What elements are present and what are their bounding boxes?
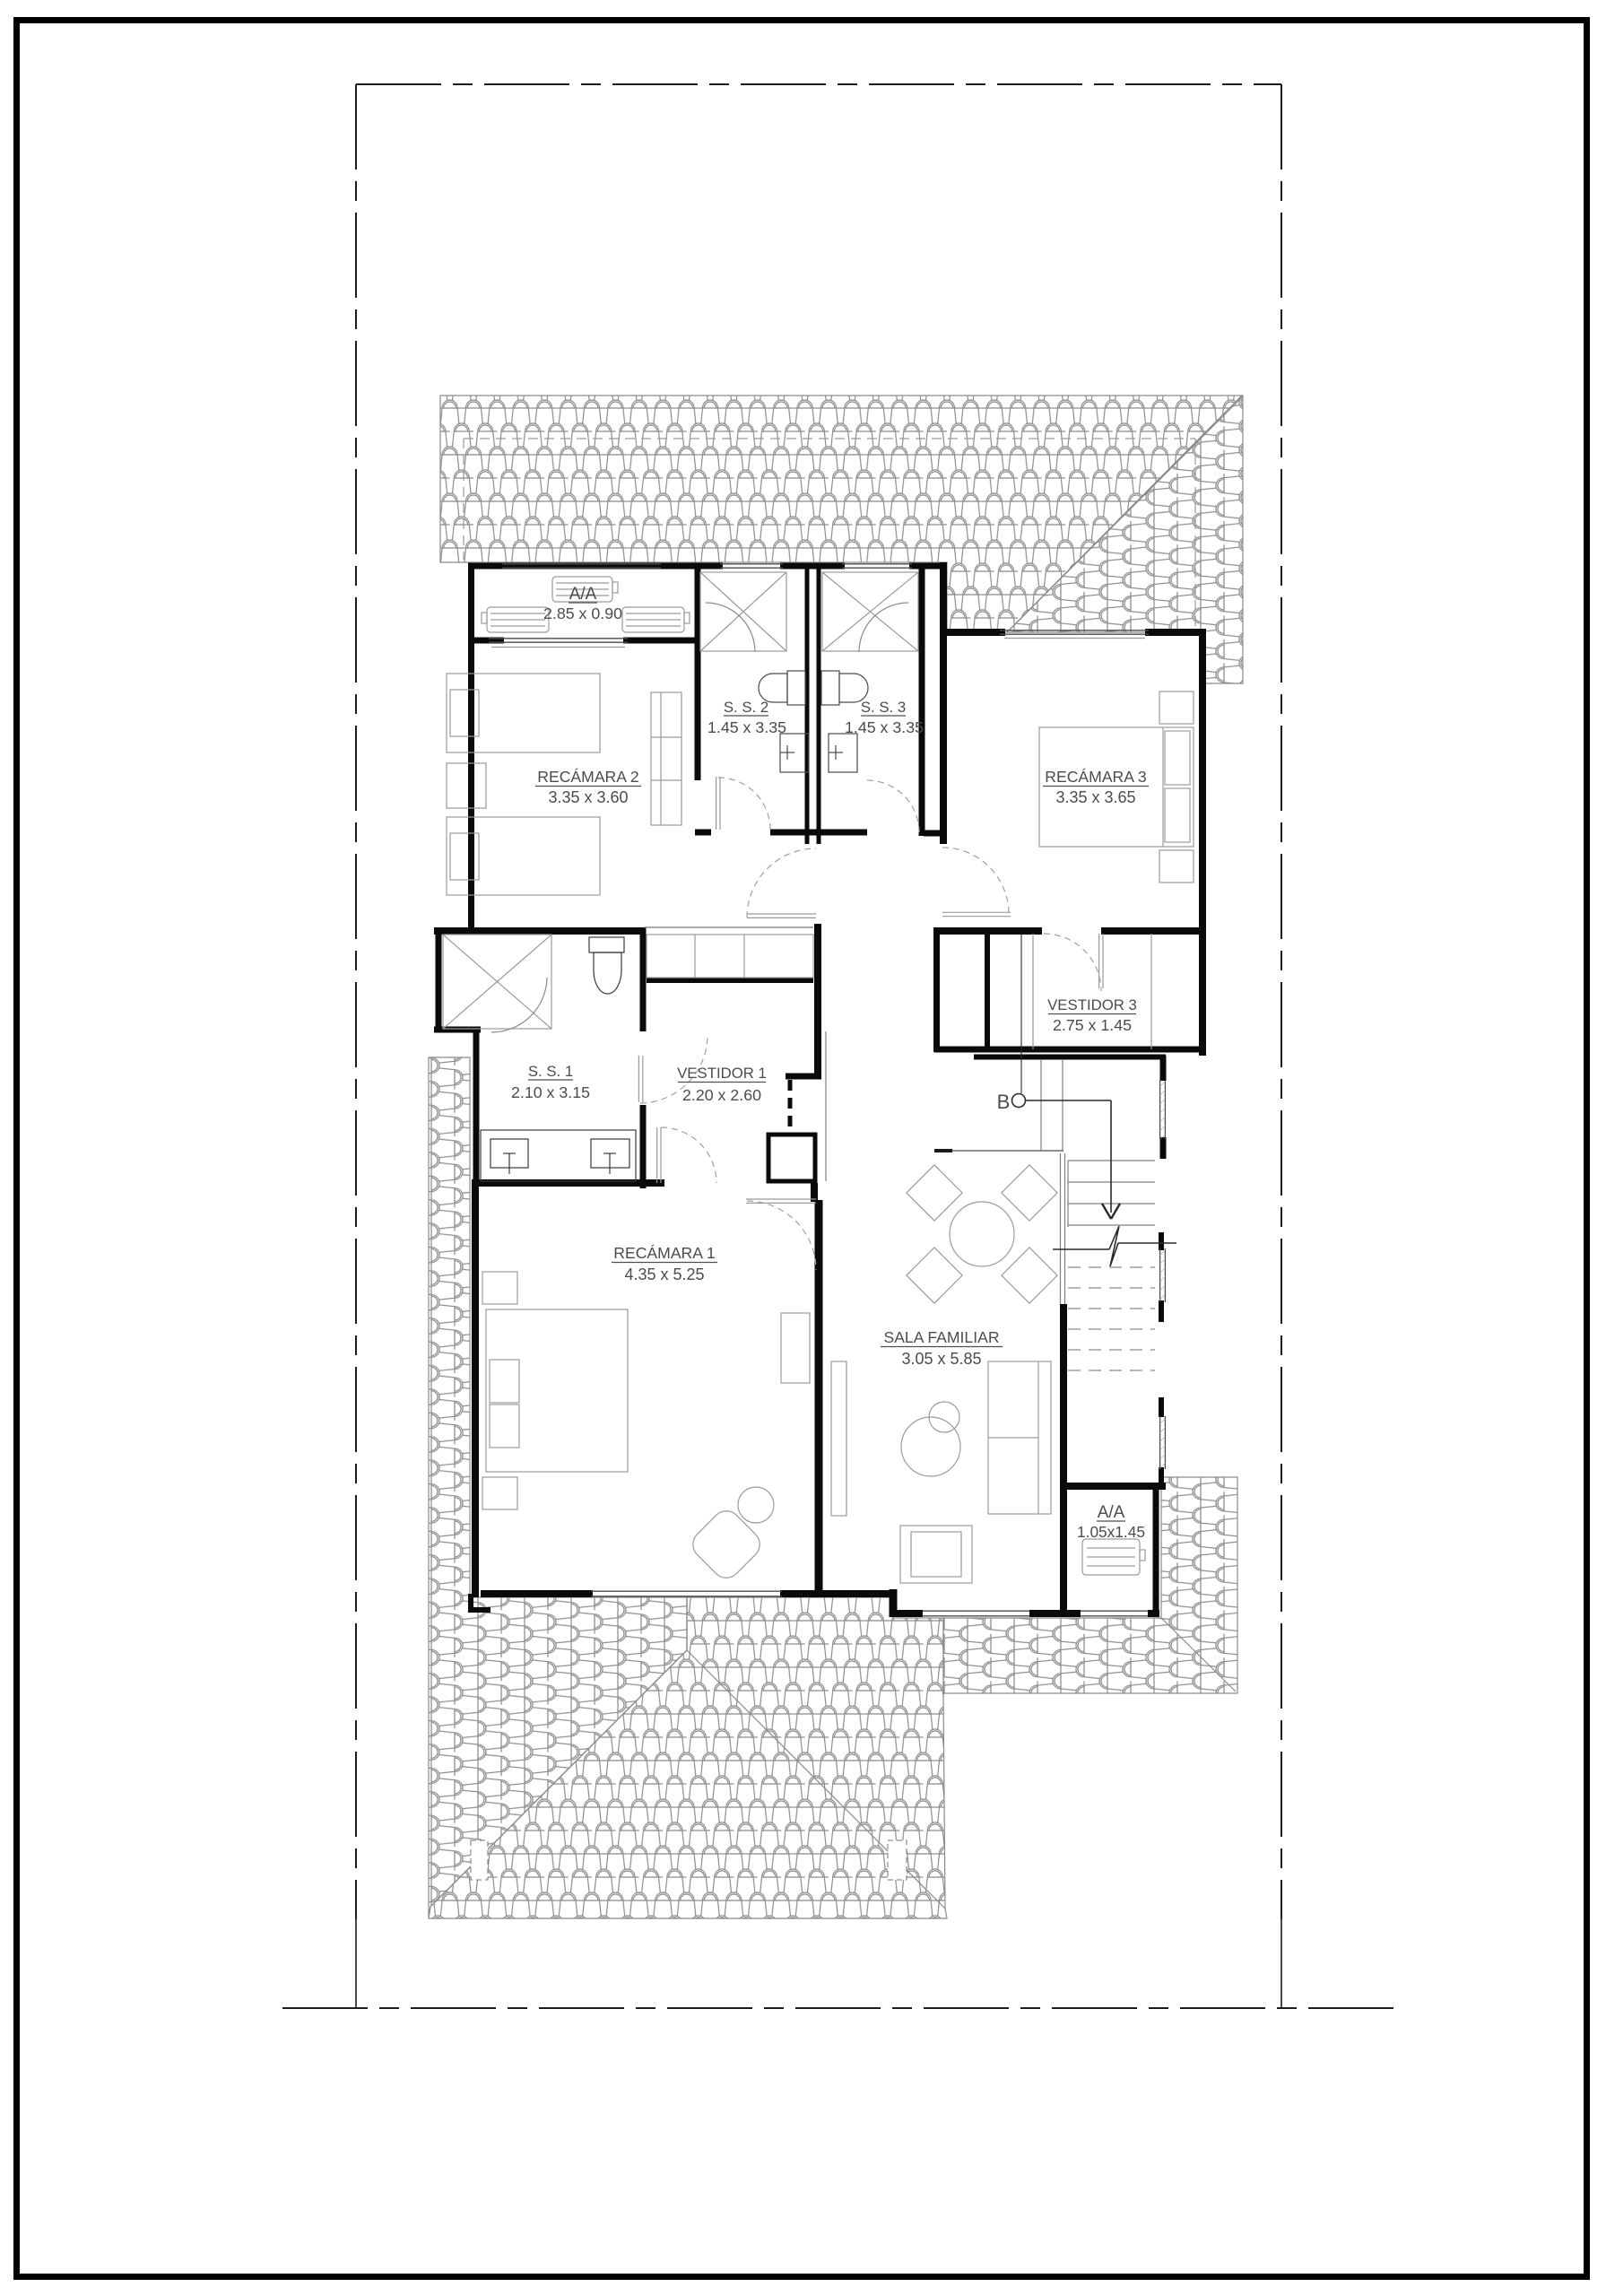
svg-text:2.10 x 3.15: 2.10 x 3.15	[511, 1083, 590, 1101]
svg-text:S. S. 1: S. S. 1	[528, 1063, 573, 1080]
svg-text:4.35 x 5.25: 4.35 x 5.25	[624, 1265, 704, 1283]
svg-text:RECÁMARA 3: RECÁMARA 3	[1045, 768, 1147, 786]
svg-text:1.45 x 3.35: 1.45 x 3.35	[708, 718, 786, 736]
svg-text:RECÁMARA 2: RECÁMARA 2	[537, 768, 638, 786]
svg-text:A/A: A/A	[1098, 1503, 1125, 1522]
svg-text:3.05 x 5.85: 3.05 x 5.85	[901, 1350, 981, 1368]
svg-text:2.20 x 2.60: 2.20 x 2.60	[682, 1086, 761, 1104]
svg-text:S. S. 3: S. S. 3	[861, 699, 906, 716]
svg-text:VESTIDOR 1: VESTIDOR 1	[677, 1065, 767, 1082]
svg-text:3.35 x 3.65: 3.35 x 3.65	[1055, 788, 1135, 806]
svg-text:A/A: A/A	[569, 585, 597, 604]
svg-text:1.05x1.45: 1.05x1.45	[1077, 1523, 1145, 1541]
svg-text:2.75 x 1.45: 2.75 x 1.45	[1053, 1016, 1132, 1034]
svg-text:2.85 x 0.90: 2.85 x 0.90	[543, 604, 622, 622]
svg-text:RECÁMARA 1: RECÁMARA 1	[613, 1244, 715, 1262]
svg-text:SALA FAMILIAR: SALA FAMILIAR	[883, 1328, 999, 1346]
svg-text:S. S. 2: S. S. 2	[724, 699, 768, 716]
svg-text:VESTIDOR 3: VESTIDOR 3	[1047, 996, 1137, 1013]
svg-text:B: B	[997, 1091, 1011, 1113]
svg-text:1.45 x 3.35: 1.45 x 3.35	[845, 718, 924, 736]
svg-text:3.35 x 3.60: 3.35 x 3.60	[548, 788, 628, 806]
